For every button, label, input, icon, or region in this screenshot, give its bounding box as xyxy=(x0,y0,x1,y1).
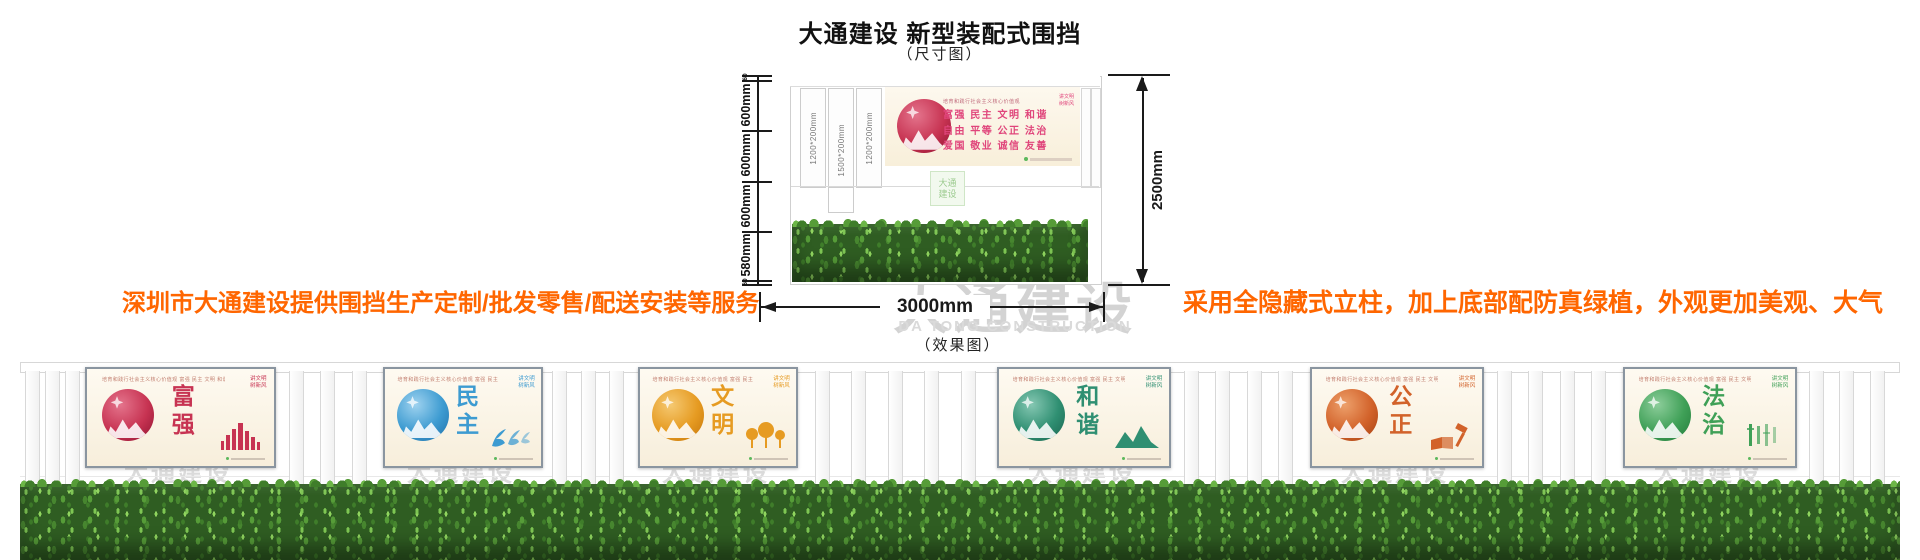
footer-text-bar xyxy=(231,458,265,460)
total-height-dimension: 2500mm xyxy=(1150,140,1166,220)
footer-text-bar xyxy=(1440,458,1474,460)
arrow-up-icon xyxy=(1136,76,1148,91)
segment-dimension: 600mm xyxy=(739,77,753,133)
theme-circle-graphic xyxy=(1326,389,1378,441)
billboard-slogan-header: 培育和践行社会主义核心价值观 xyxy=(943,98,1020,105)
core-values-rows: 富强 民主 文明 和谐 自由 平等 公正 法治 爱国 敬业 诚信 友善 xyxy=(943,108,1048,155)
footer-text-bar xyxy=(754,458,788,460)
theme-circle-graphic xyxy=(397,389,449,441)
panel-word: 富强 xyxy=(169,384,192,440)
hidden-post: 1200*200mm xyxy=(856,88,882,188)
hidden-post: 1200*200mm xyxy=(800,88,826,188)
theme-circle-graphic xyxy=(1013,389,1065,441)
hidden-post-lower xyxy=(828,187,854,213)
corner-line: 讲文明 xyxy=(250,376,267,383)
hedge-greenery xyxy=(792,224,1088,282)
post-size-label: 1500*200mm xyxy=(837,124,846,177)
calligraphy-columns-icon xyxy=(1741,420,1785,450)
panel-word: 公正 xyxy=(1387,384,1410,440)
doves-icon xyxy=(488,420,532,450)
green-dot-icon xyxy=(1748,457,1751,460)
fence-top-rail xyxy=(790,76,1100,87)
arrow-down-icon xyxy=(1136,269,1148,284)
panel-values-strip: 培育和践行社会主义核心价值观 富强 民主 文明 和谐 自由 平等 公正 法治 爱… xyxy=(1013,376,1125,383)
panel-corner-slogan: 讲文明树新风 xyxy=(518,376,535,390)
fence-post xyxy=(1091,88,1101,188)
footer-text-bar xyxy=(1030,158,1072,161)
billboard-corner-slogan: 讲文明 树新风 xyxy=(1059,94,1074,107)
brand-watermark-en: DA TONG CONSTRUCTION xyxy=(858,318,1172,335)
theme-circle-graphic xyxy=(652,389,704,441)
effect-diagram-caption: （效果图） xyxy=(858,334,1058,355)
fence-post xyxy=(1081,88,1091,188)
panel-values-strip: 培育和践行社会主义核心价值观 富强 民主 文明 和谐 自由 平等 公正 法治 爱… xyxy=(102,376,225,383)
effect-panel-gongzheng: 培育和践行社会主义核心价值观 富强 民主 文明 和谐 自由 平等 公正 法治 爱… xyxy=(1310,367,1484,468)
corner-line: 树新风 xyxy=(1772,383,1789,390)
total-width-dimension: 3000mm xyxy=(880,295,990,319)
mountains-icon xyxy=(1115,420,1159,450)
dimension-diagram-caption: （尺寸图） xyxy=(840,43,1040,64)
dimension-tick xyxy=(1103,292,1105,322)
values-row: 富强 民主 文明 和谐 xyxy=(943,108,1048,124)
brand-logo-text: 大通建设 xyxy=(937,178,959,199)
panel-corner-slogan: 讲文明树新风 xyxy=(1772,376,1789,390)
effect-panel-hexie: 培育和践行社会主义核心价值观 富强 民主 文明 和谐 自由 平等 公正 法治 爱… xyxy=(997,367,1171,468)
corner-line: 讲文明 xyxy=(1146,376,1163,383)
corner-line: 讲文明 xyxy=(518,376,535,383)
footer-text-bar xyxy=(1753,458,1787,460)
values-row: 自由 平等 公正 法治 xyxy=(943,124,1048,140)
panel-word: 和谐 xyxy=(1074,384,1097,440)
panel-word: 法治 xyxy=(1700,384,1723,440)
green-dot-icon xyxy=(226,457,229,460)
green-dot-icon xyxy=(1122,457,1125,460)
values-billboard: 培育和践行社会主义核心价值观 富强 民主 文明 和谐 自由 平等 公正 法治 爱… xyxy=(885,87,1080,166)
dimension-line xyxy=(757,75,759,285)
panel-footer-mark xyxy=(1748,457,1787,460)
corner-line: 讲文明 xyxy=(1059,94,1074,101)
effect-panel-fazhi: 培育和践行社会主义核心价值观 富强 民主 文明 和谐 自由 平等 公正 法治 爱… xyxy=(1623,367,1797,468)
corner-line: 树新风 xyxy=(1146,383,1163,390)
arrow-left-icon xyxy=(762,302,776,312)
post-size-label: 1200*200mm xyxy=(809,112,818,165)
panel-footer-mark xyxy=(1122,457,1161,460)
segment-dimension: 600mm xyxy=(739,127,753,183)
panel-footer-mark xyxy=(226,457,265,460)
city-skyline-icon xyxy=(219,420,263,450)
panel-corner-slogan: 讲文明树新风 xyxy=(1459,376,1476,390)
green-dot-icon xyxy=(1024,157,1028,161)
brand-logo-stamp: 大通建设 xyxy=(930,171,965,206)
panel-values-strip: 培育和践行社会主义核心价值观 富强 民主 文明 和谐 自由 平等 公正 法治 爱… xyxy=(397,376,500,383)
theme-circle-graphic xyxy=(1639,389,1691,441)
panel-values-strip: 培育和践行社会主义核心价值观 富强 民主 文明 和谐 自由 平等 公正 法治 爱… xyxy=(652,376,755,383)
arrow-right-icon xyxy=(1089,302,1103,312)
corner-line: 树新风 xyxy=(250,383,267,390)
corner-line: 讲文明 xyxy=(773,376,790,383)
panel-footer-mark xyxy=(494,457,533,460)
corner-line: 树新风 xyxy=(1059,101,1074,108)
panel-corner-slogan: 讲文明树新风 xyxy=(773,376,790,390)
effect-panel-minzhu: 培育和践行社会主义核心价值观 富强 民主 文明 和谐 自由 平等 公正 法治 爱… xyxy=(383,367,543,468)
green-dot-icon xyxy=(494,457,497,460)
panel-values-strip: 培育和践行社会主义核心价值观 富强 民主 文明 和谐 自由 平等 公正 法治 爱… xyxy=(1639,376,1751,383)
billboard-footer-mark xyxy=(1024,157,1072,161)
book-gavel-icon xyxy=(1428,420,1472,450)
values-row: 爱国 敬业 诚信 友善 xyxy=(943,139,1048,155)
panel-footer-mark xyxy=(1435,457,1474,460)
corner-line: 树新风 xyxy=(773,383,790,390)
hedge-greenery xyxy=(20,484,1900,560)
post-size-label: 1200*200mm xyxy=(865,112,874,165)
segment-dimension: 60 xyxy=(742,270,750,294)
footer-text-bar xyxy=(499,458,533,460)
feature-note: 采用全隐藏式立柱，加上底部配防真绿植，外观更加美观、大气 xyxy=(1183,283,1883,319)
corner-line: 树新风 xyxy=(518,383,535,390)
panel-word: 文明 xyxy=(709,384,732,440)
panel-values-strip: 培育和践行社会主义核心价值观 富强 民主 文明 和谐 自由 平等 公正 法治 爱… xyxy=(1326,376,1438,383)
panel-footer-mark xyxy=(749,457,788,460)
panel-corner-slogan: 讲文明树新风 xyxy=(1146,376,1163,390)
effect-panel-fuqiang: 培育和践行社会主义核心价值观 富强 民主 文明 和谐 自由 平等 公正 法治 爱… xyxy=(85,367,276,468)
green-dot-icon xyxy=(749,457,752,460)
effect-panel-wenming: 培育和践行社会主义核心价值观 富强 民主 文明 和谐 自由 平等 公正 法治 爱… xyxy=(638,367,798,468)
segment-dimension: 600mm xyxy=(739,178,753,234)
dimension-line xyxy=(1142,78,1144,282)
trees-icon xyxy=(743,420,787,450)
service-note: 深圳市大通建设提供围挡生产定制/批发零售/配送安装等服务 xyxy=(122,283,759,318)
green-dot-icon xyxy=(1435,457,1438,460)
corner-line: 树新风 xyxy=(1459,383,1476,390)
corner-line: 讲文明 xyxy=(1772,376,1789,383)
panel-corner-slogan: 讲文明树新风 xyxy=(250,376,267,390)
footer-text-bar xyxy=(1127,458,1161,460)
poster-canvas: 大通建设 新型装配式围挡 （尺寸图） 深圳市大通建设提供围挡生产定制/批发零售/… xyxy=(0,0,1920,560)
dimension-tick xyxy=(1108,284,1170,286)
theme-circle-graphic xyxy=(102,389,154,441)
corner-line: 讲文明 xyxy=(1459,376,1476,383)
panel-word: 民主 xyxy=(454,384,477,440)
